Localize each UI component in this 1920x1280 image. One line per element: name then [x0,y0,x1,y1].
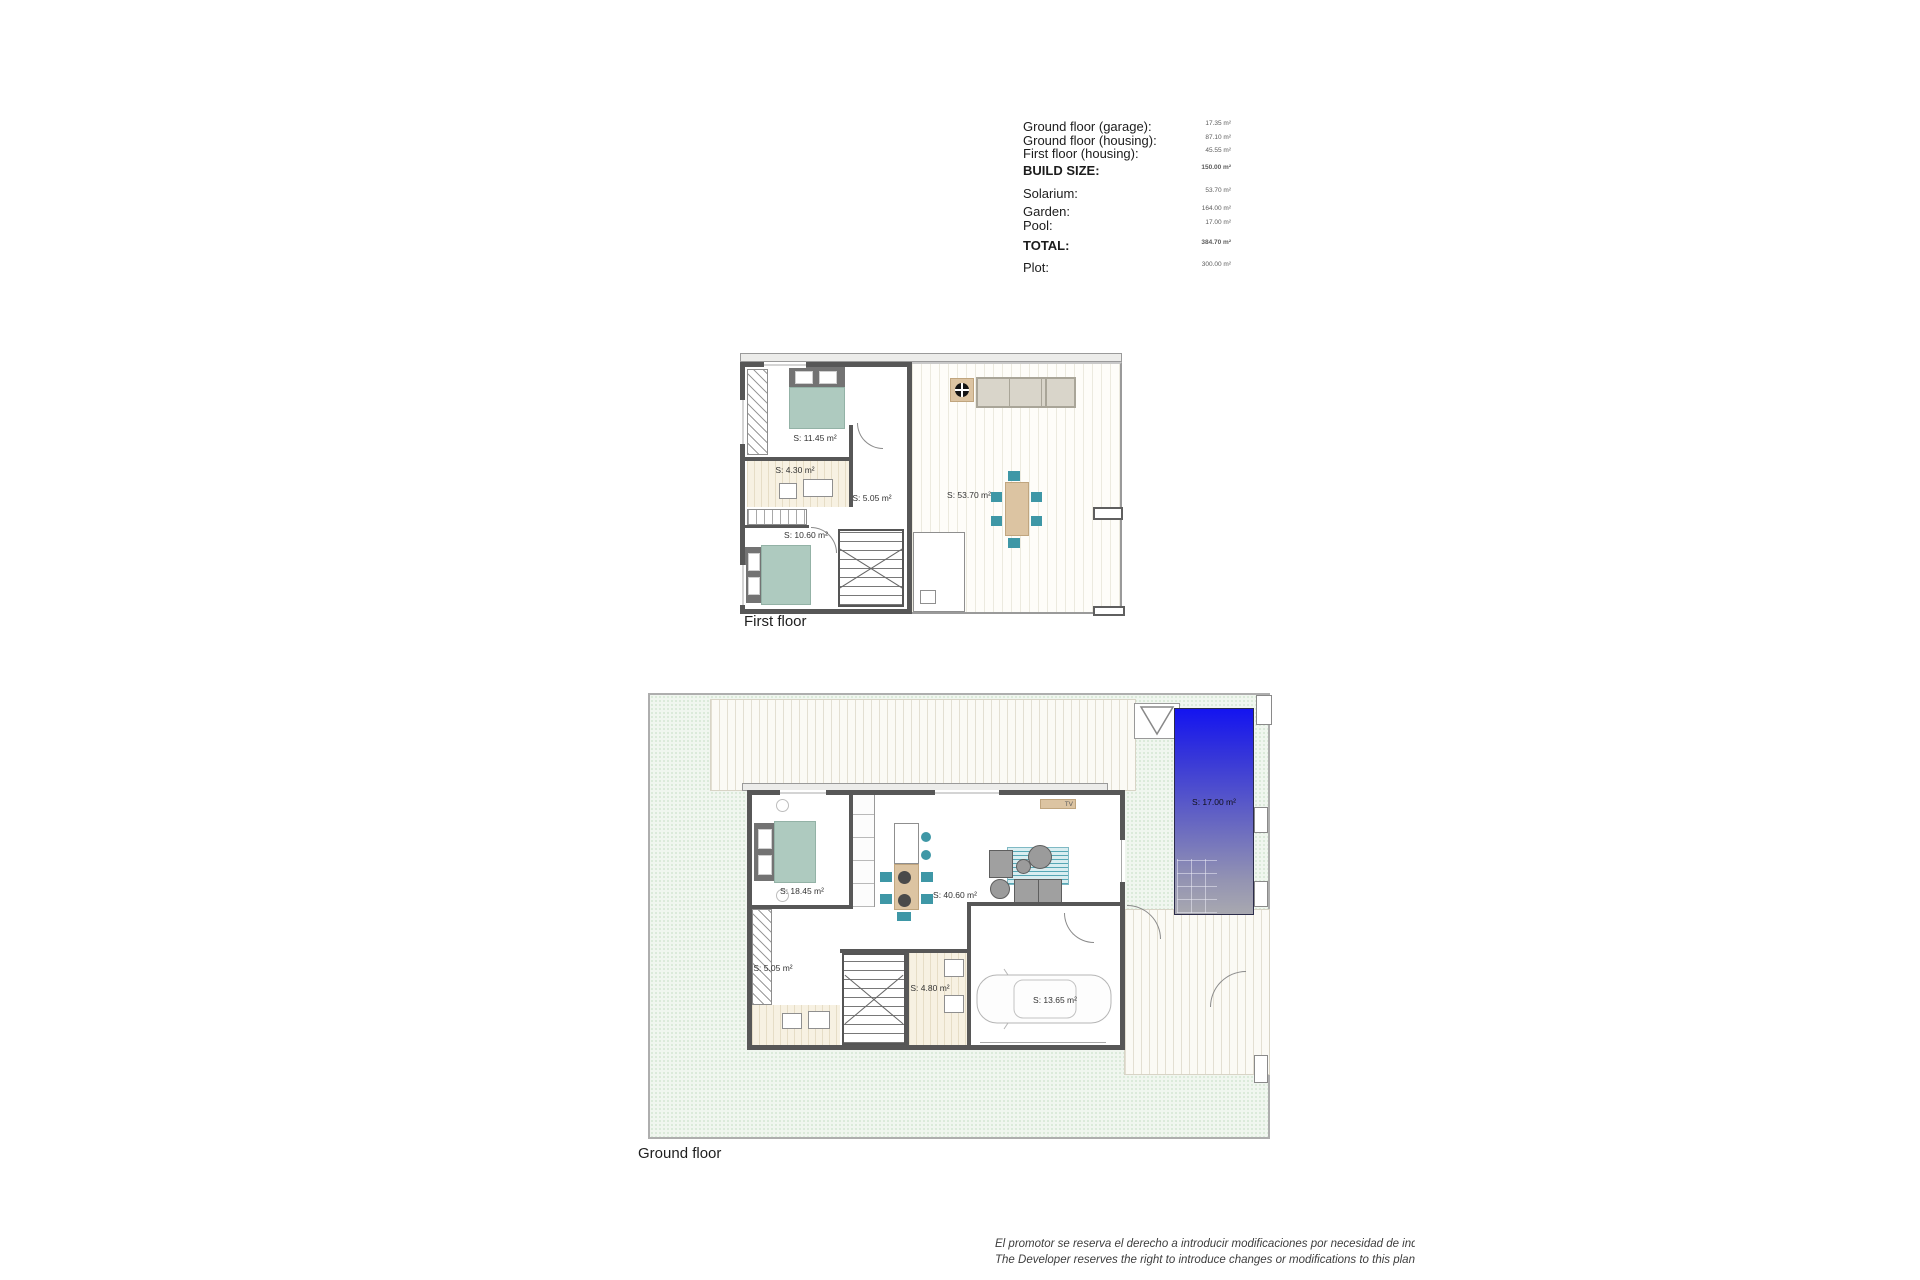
roof-eave [740,353,1122,362]
sofa-icon [1014,879,1062,903]
row-value: 164.00 m² [1202,205,1231,212]
row-value: 87.10 m² [1205,134,1231,141]
pool: S: 17.00 m² [1174,708,1254,915]
plate-icon [898,871,911,884]
disclaimer: El promotor se reserva el derecho a intr… [995,1236,1415,1268]
window-icon [740,565,746,605]
floorplan-sheet: Ground floor (garage):17.35 m² Ground fl… [0,0,1920,1280]
pillow-icon [819,371,837,384]
row-value: 17.00 m² [1205,219,1231,226]
tv-sideboard-icon: TV [1040,799,1076,809]
plate-icon [898,894,911,907]
room-label-bedroom2: S: 10.60 m² [774,530,838,540]
closet-icon [752,909,772,1005]
pouf-icon [1028,845,1052,869]
table-row: Solarium:53.70 m² [1023,186,1233,201]
pillar [1256,695,1272,725]
pillow-icon [748,553,760,571]
door-arc [1064,913,1094,943]
washer-icon [944,995,964,1013]
toilet-icon [808,1011,830,1029]
window-icon [780,790,826,796]
kitchen-island-icon [894,823,919,864]
pouf-icon [1016,859,1031,874]
parapet [1093,606,1125,616]
room-label-garage: S: 13.65 m² [1021,995,1089,1005]
chair-icon [921,872,933,882]
room-label-bedroom1: S: 11.45 m² [784,433,846,443]
table-row: Pool:17.00 m² [1023,218,1233,233]
pillow-icon [758,855,772,875]
wall [905,949,909,1045]
parapet [1093,507,1123,520]
sink-icon [779,483,797,499]
row-label: Pool: [1023,218,1233,233]
closet-icon [747,369,768,455]
room-label-living: S: 40.60 m² [923,890,987,900]
row-label: Solarium: [1023,186,1233,201]
shower-icon [1135,704,1179,738]
deck-terrace [710,699,1136,791]
bed-icon [774,821,816,883]
pool-steps-icon [1177,859,1217,913]
pouf-icon [990,879,1010,899]
room-label-hall: S: 5.05 m² [840,493,904,503]
room-label-bedroom: S: 18.45 m² [770,886,834,896]
table-row-build-size: BUILD SIZE:150.00 m² [1023,163,1233,178]
table-row: Plot:300.00 m² [1023,260,1233,275]
chair-icon [1008,538,1020,548]
dining-table-icon [1005,482,1029,536]
garage-door-icon [980,1040,1106,1045]
row-value: 300.00 m² [1202,261,1231,268]
chair-icon [1031,516,1042,526]
row-value: 150.00 m² [1201,164,1231,171]
stool-icon [921,832,931,842]
pillar [1254,881,1268,907]
chair-icon [991,516,1002,526]
kitchen-counter-icon [853,795,875,907]
washer-icon [944,959,964,977]
armchair-icon [989,850,1013,878]
chair-icon [1031,492,1042,502]
table-row: Garden:164.00 m² [1023,204,1233,219]
stairs-icon [838,529,904,607]
room-label-solarium: S: 53.70 m² [936,490,1002,500]
bed-icon [789,387,845,429]
window-icon [1118,840,1125,882]
row-label: Ground floor (garage): [1023,119,1233,134]
row-value: 45.55 m² [1205,147,1231,154]
tv-label: TV [1065,801,1073,808]
first-floor-left-wing [740,362,912,614]
disclaimer-line-en: The Developer reserves the right to intr… [995,1252,1415,1268]
vanity-icon [803,479,833,497]
ceiling-light-icon [776,799,789,812]
pillar [1254,807,1268,833]
table-row: First floor (housing):45.55 m² [1023,146,1233,161]
chair-icon [880,894,892,904]
bbq-icon [955,383,969,397]
chair-icon [880,872,892,882]
window-icon [935,790,999,796]
chair-icon [1008,471,1020,481]
stairs-icon [842,953,906,1045]
row-value: 384.70 m² [1201,239,1231,246]
window-icon [764,362,806,368]
stool-icon [921,850,931,860]
sink-icon [782,1013,802,1029]
wardrobe-icon [747,509,807,525]
window-icon [740,400,746,444]
table-row-total: TOTAL:384.70 m² [1023,238,1233,253]
wall [967,902,971,1050]
room-label-pool: S: 17.00 m² [1175,797,1253,807]
outdoor-armchair-icon [1045,377,1076,408]
ground-floor-title: Ground floor [638,1145,721,1162]
ground-floor-plot: S: 17.00 m² [648,693,1270,1139]
table-row: Ground floor (garage):17.35 m² [1023,119,1233,134]
pillow-icon [758,829,772,849]
chair-icon [897,912,911,921]
room-label-bathroom: S: 4.30 m² [764,465,826,475]
ground-floor-house: TV [747,790,1125,1050]
bed-icon [761,545,811,605]
wall [745,525,809,528]
fixture-icon [920,590,936,604]
first-floor-plan: S: 11.45 m² S: 4.30 m² S: 5.05 m² S: 10.… [740,353,1126,633]
first-floor-title: First floor [744,613,807,630]
bbq-table-icon [950,378,974,402]
door-arc [857,423,883,449]
pillow-icon [748,577,760,595]
disclaimer-line-es: El promotor se reserva el derecho a intr… [995,1236,1415,1252]
room-label-bathroom: S: 5.05 m² [741,963,805,973]
row-label: First floor (housing): [1023,146,1233,161]
solarium [912,362,1122,614]
pillow-icon [795,371,813,384]
row-value: 53.70 m² [1205,187,1231,194]
pillar [1254,1055,1268,1083]
room-label-laundry: S: 4.80 m² [898,983,962,993]
row-value: 17.35 m² [1205,120,1231,127]
wall [967,902,1120,906]
